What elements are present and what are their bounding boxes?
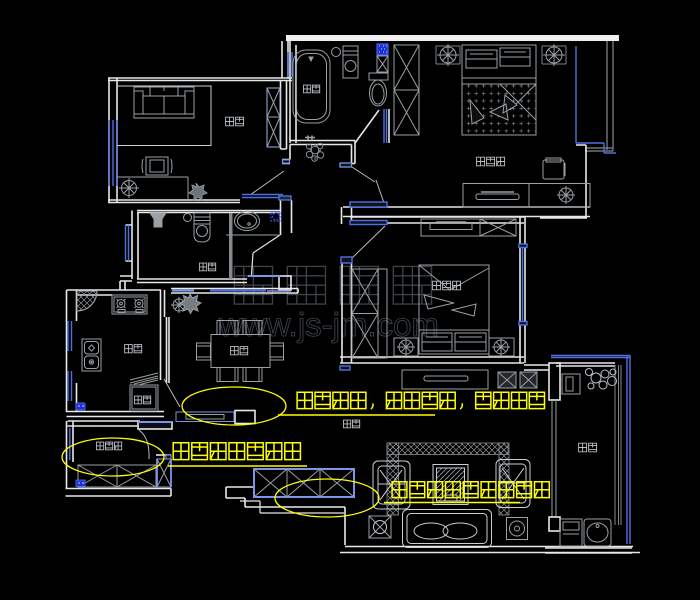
svg-text:www.js-jm.com: www.js-jm.com [218, 306, 439, 343]
